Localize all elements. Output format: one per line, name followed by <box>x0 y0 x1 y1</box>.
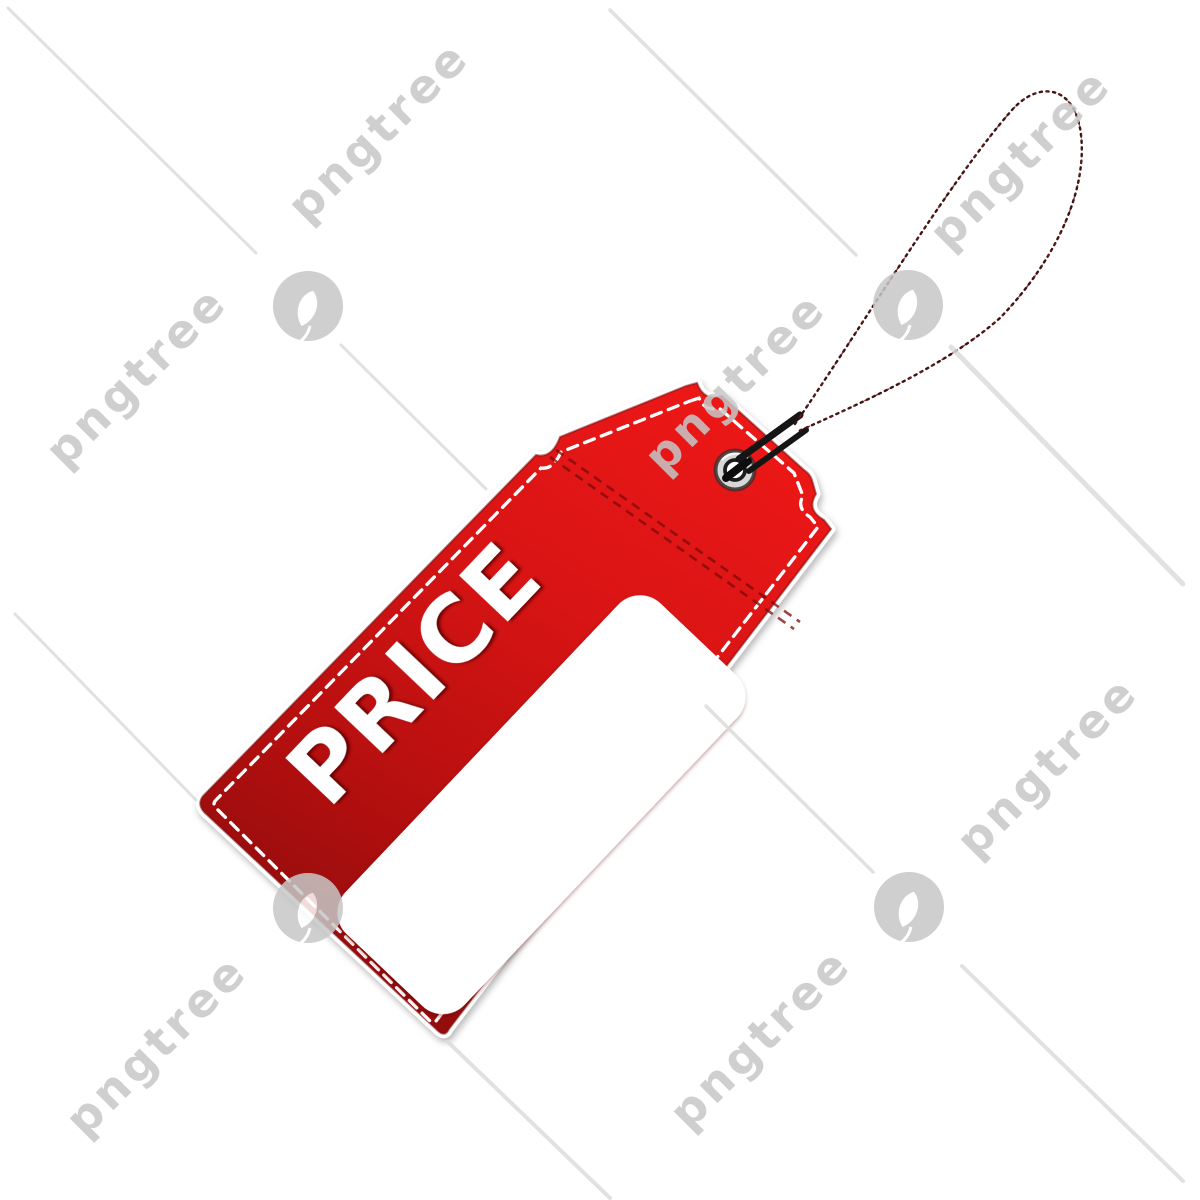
watermark-diagonal-line <box>341 345 486 489</box>
watermark-diagonal-line <box>962 966 1183 1181</box>
watermark-diagonal-line <box>448 1042 610 1198</box>
watermark-diagonal-line <box>15 614 196 800</box>
watermark-diagonal-line <box>8 8 256 253</box>
watermark-brand-text: pngtree <box>54 943 257 1146</box>
watermark-diagonal-line <box>706 706 873 872</box>
watermark-brand-text: pngtree <box>276 29 479 232</box>
watermark-brand-text: pngtree <box>658 936 861 1139</box>
watermark-diagonal-line <box>610 10 856 255</box>
watermark-brand-text: pngtree <box>34 274 237 477</box>
price-tag-illustration: PRICE pngtreepngtreepngtreepngtreepngtre… <box>0 0 1200 1200</box>
watermark-diagonal-line <box>951 347 1183 584</box>
watermark-brand-text: pngtree <box>918 56 1121 259</box>
watermark-brand-text: pngtree <box>945 664 1148 867</box>
stock-image-canvas: PRICE pngtreepngtreepngtreepngtreepngtre… <box>0 0 1200 1200</box>
pngtree-leaf-logo-icon <box>273 271 343 342</box>
pngtree-leaf-logo-icon <box>874 872 944 943</box>
pngtree-leaf-logo-icon <box>873 270 943 341</box>
